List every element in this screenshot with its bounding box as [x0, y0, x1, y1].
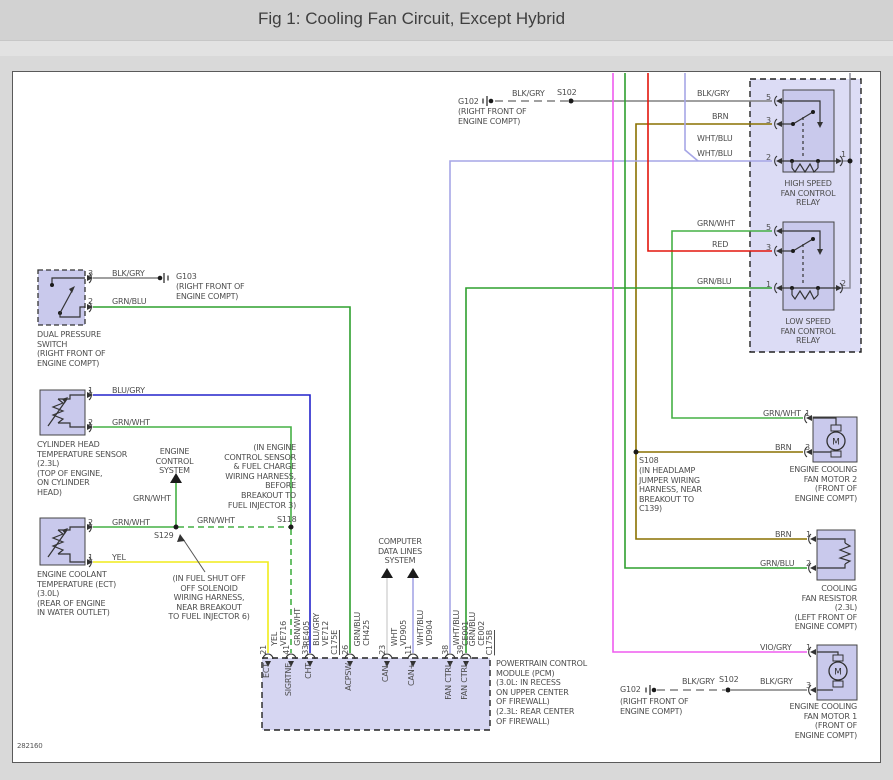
splice-label: S129 [154, 531, 174, 541]
splice-label: S118 [277, 515, 297, 525]
splice-s102-top [569, 99, 574, 104]
component-caption: CYLINDER HEAD TEMPERATURE SENSOR (2.3L) … [37, 440, 127, 498]
wire-label: WHT/BLU [697, 149, 733, 159]
pin-number: 1 [806, 530, 811, 540]
pcm-signal: ECT [262, 663, 271, 678]
pin-number: 1 [841, 150, 846, 160]
splice-s108 [634, 450, 639, 455]
system-reference: COMPUTER DATA LINES SYSTEM [368, 537, 432, 566]
wire-label: GRN/WHT [133, 494, 168, 504]
wire-label: WHT [390, 628, 399, 646]
wire-label: GRN/WHT [697, 219, 735, 229]
pin-number: 3 [805, 443, 810, 453]
connector-label: C175E [330, 630, 339, 655]
pcm-box [262, 658, 490, 730]
wire-label: BRN [712, 112, 728, 122]
pin-number: 1 [88, 553, 93, 563]
splice-s102-bottom [726, 688, 731, 693]
circuit-label: VD904 [425, 620, 434, 646]
motor-letter: M [832, 438, 840, 448]
component-caption: POWERTRAIN CONTROL MODULE (PCM) (3.0L: I… [496, 659, 587, 726]
splice-s118 [289, 525, 294, 530]
splice-note: (IN FUEL SHUT OFF OFF SOLENOID WIRING HA… [150, 574, 268, 622]
pin-number: 1 [806, 643, 811, 653]
component-caption: DUAL PRESSURE SWITCH (RIGHT FRONT OF ENG… [37, 330, 105, 368]
pcm-signal: CAN- [381, 663, 390, 682]
ground-location: (RIGHT FRONT OF ENGINE COMPT) [458, 107, 526, 126]
wire-label: GRN/WHT [293, 608, 302, 646]
pin-number: 3 [766, 116, 771, 126]
pin-number: 3 [766, 243, 771, 253]
wire-label: BRN [775, 443, 791, 453]
junction-relay-feed [848, 159, 853, 164]
wire-label: WHT/BLU [452, 610, 461, 646]
wire-label: GRN/BLU [697, 277, 731, 287]
component-caption: HIGH SPEED FAN CONTROL RELAY [770, 179, 846, 208]
motor-letter: M [834, 668, 842, 678]
pin-number: 2 [806, 559, 811, 569]
connector-label: C175B [485, 630, 494, 655]
wiring-diagram-page: Fig 1: Cooling Fan Circuit, Except Hybri… [0, 0, 893, 780]
circuit-label: VE712 [321, 621, 330, 646]
drawing-number: 282160 [17, 742, 43, 752]
pin-number: 5 [766, 93, 771, 103]
ground-location: (RIGHT FRONT OF ENGINE COMPT) [176, 282, 244, 301]
pcm-signal: FAN CTRL [444, 663, 453, 700]
pin-number: 2 [841, 279, 846, 289]
wire-label: GRN/BLU [353, 612, 362, 646]
component-caption: ENGINE COOLANT TEMPERATURE (ECT) (3.0L) … [37, 570, 116, 618]
system-reference: ENGINE CONTROL SYSTEM [147, 447, 202, 476]
circuit-label: VD905 [399, 620, 408, 646]
wire-label: WHT/BLU [416, 610, 425, 646]
pcm-signal: CAN+ [407, 663, 416, 686]
pcm-signal: SIGRTNE [284, 663, 293, 696]
pcm-signal: CHT [304, 663, 313, 679]
component-caption: COOLING FAN RESISTOR (2.3L) (LEFT FRONT … [757, 584, 857, 632]
pcm-pin-number: 33 [301, 645, 310, 655]
pcm-pin-number: 11 [404, 645, 413, 655]
splice-note: (IN HEADLAMP JUMPER WIRING HARNESS, NEAR… [639, 466, 702, 514]
wire-label: GRN/WHT [197, 516, 235, 526]
wire-label: YEL [270, 632, 279, 646]
pin-number: 2 [88, 297, 93, 307]
ground-label: G102 [620, 685, 641, 695]
wire-label: BLK/GRY [697, 89, 730, 99]
splice-note: (IN ENGINE CONTROL SENSOR & FUEL CHARGE … [216, 443, 296, 510]
pin-number: 2 [766, 153, 771, 163]
wire-label: BLK/GRY [112, 269, 145, 279]
pcm-signal: FAN CTRL [460, 663, 469, 700]
pin-number: 3 [88, 269, 93, 279]
pin-number: 2 [88, 418, 93, 428]
splice-label: S102 [719, 675, 739, 685]
ground-label: G103 [176, 272, 197, 282]
splice-label: S102 [557, 88, 577, 98]
pin-number: 1 [805, 409, 810, 419]
pcm-pin-number: 41 [282, 645, 291, 655]
pcm-pin-number: 26 [341, 645, 350, 655]
component-caption: LOW SPEED FAN CONTROL RELAY [770, 317, 846, 346]
wire-label: VIO/GRY [760, 643, 792, 653]
ground-label: G102 [458, 97, 479, 107]
pin-number: 1 [766, 280, 771, 290]
wire-label: BLK/GRY [760, 677, 793, 687]
circuit-label: VE716 [279, 621, 288, 646]
low-speed-relay-box [783, 222, 834, 310]
wire-label: GRN/BLU [468, 612, 477, 646]
wire-label: GRN/WHT [763, 409, 801, 419]
pcm-signal: ACPSW [344, 663, 353, 691]
component-caption: ENGINE COOLING FAN MOTOR 1 (FRONT OF ENG… [757, 702, 857, 740]
wire-label: RED [712, 240, 728, 250]
pin-number: 2 [88, 518, 93, 528]
wire-label: GRN/BLU [112, 297, 146, 307]
wire-label: WHT/BLU [697, 134, 733, 144]
pcm-pin-number: 39 [456, 645, 465, 655]
pin-number: 1 [88, 386, 93, 396]
wire-label: GRN/BLU [760, 559, 794, 569]
pin-number: 3 [806, 681, 811, 691]
ground-location: (RIGHT FRONT OF ENGINE COMPT) [620, 697, 688, 716]
circuit-label: CH425 [362, 620, 371, 646]
circuit-label: RE405 [302, 621, 311, 646]
cht-sensor-box [40, 390, 85, 435]
pcm-pin-number: 23 [378, 645, 387, 655]
wire-label: BRN [775, 530, 791, 540]
wire-label: BLU/GRY [312, 613, 321, 646]
pin-number: 5 [766, 223, 771, 233]
wire-label: YEL [112, 553, 126, 563]
wire-label: BLU/GRY [112, 386, 145, 396]
splice-s129 [174, 525, 179, 530]
wire-label: GRN/WHT [112, 518, 150, 528]
wire-label: GRN/WHT [112, 418, 150, 428]
pcm-pin-number: 21 [259, 645, 268, 655]
wire-label: BLK/GRY [682, 677, 715, 687]
wire-label: BLK/GRY [512, 89, 545, 99]
fan-resistor-box [817, 530, 855, 580]
component-caption: ENGINE COOLING FAN MOTOR 2 (FRONT OF ENG… [757, 465, 857, 503]
splice-label: S108 [639, 456, 659, 466]
pcm-pin-number: 38 [441, 645, 450, 655]
